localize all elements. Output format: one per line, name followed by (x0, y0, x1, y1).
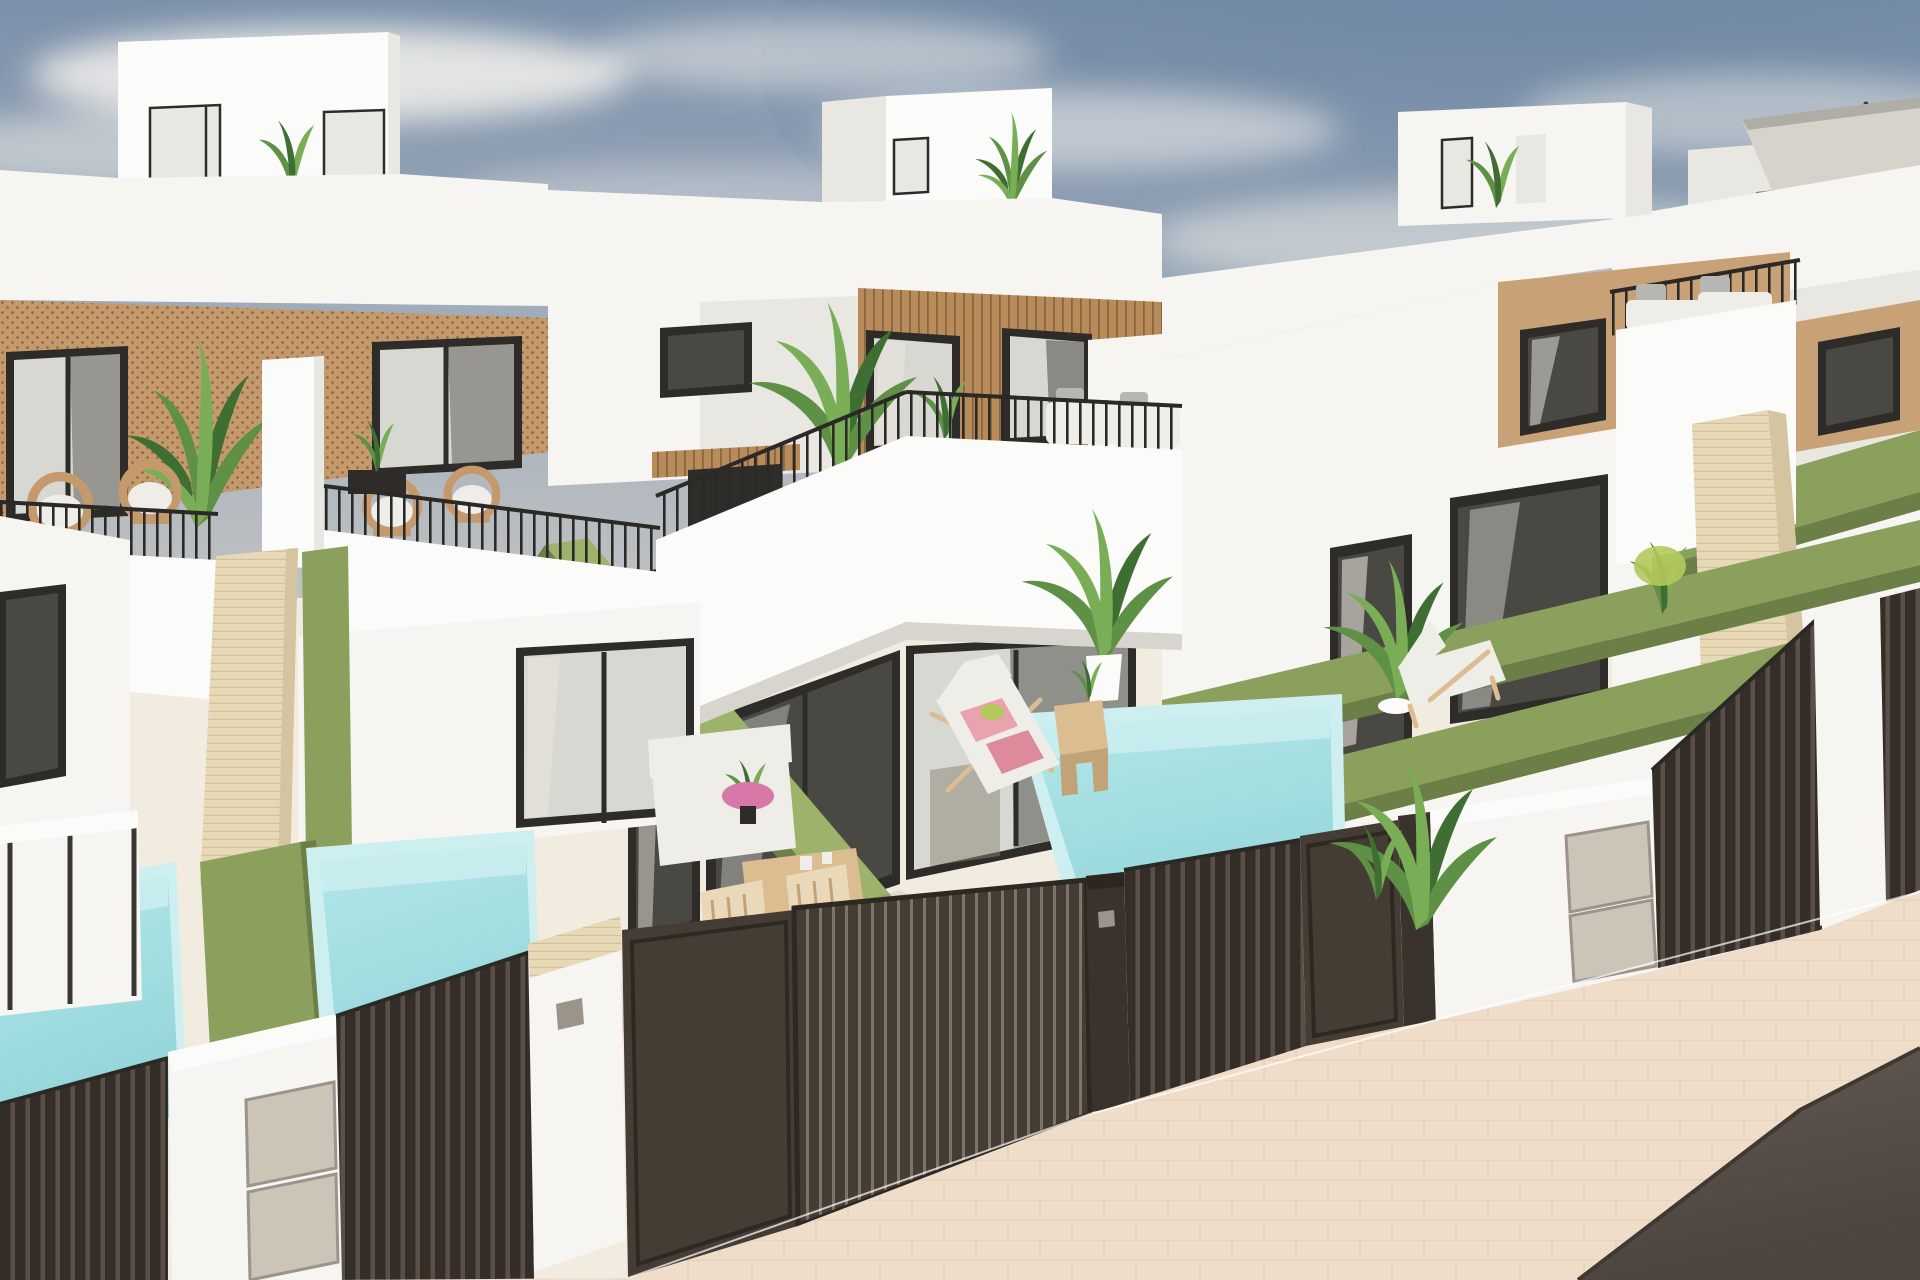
house3-roof-door-2 (1516, 134, 1546, 204)
house1-slider-right (372, 336, 522, 476)
end-pillar-white (1814, 600, 1886, 926)
utility-pillar (168, 1014, 342, 1280)
outdoor-sofa-seat (652, 758, 796, 866)
meter-door-2 (248, 1174, 338, 1280)
architectural-render (0, 0, 1920, 1280)
meter-panel-2 (1570, 900, 1656, 982)
gate-pillar-dark (1086, 872, 1130, 1112)
meter-door (246, 1082, 336, 1186)
gate-keypad (1098, 910, 1115, 928)
house1-parapet (0, 170, 548, 306)
house2-small-window (660, 322, 752, 398)
palm-pot (1086, 654, 1122, 702)
outdoor-counter-left (0, 810, 142, 1016)
gate-pillar-white (528, 916, 626, 1272)
house2-roof-box (822, 88, 1052, 218)
left-neighbor-window (0, 584, 66, 788)
meter-panel (1566, 822, 1652, 912)
house2-roof-door (894, 138, 928, 194)
fence-far-right (1880, 588, 1920, 902)
house3-roof-door (1442, 138, 1472, 208)
house3-roof-box (1398, 102, 1626, 226)
render-viewport (0, 0, 1920, 1280)
green-wall-left-upper (302, 546, 352, 862)
